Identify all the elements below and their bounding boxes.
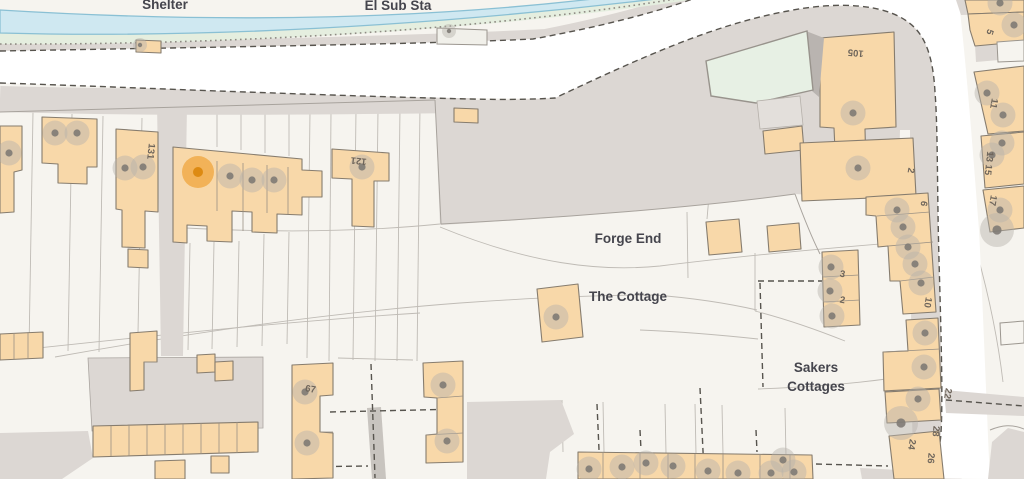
property-marker[interactable]	[913, 321, 938, 346]
house-number-label: 131	[144, 143, 157, 161]
label-shelter: Shelter	[142, 0, 189, 12]
property-marker[interactable]	[65, 121, 90, 146]
property-marker[interactable]	[634, 451, 659, 476]
house-number-label: 10	[921, 296, 934, 308]
property-marker[interactable]	[884, 406, 918, 440]
property-marker[interactable]	[818, 279, 843, 304]
property-marker[interactable]	[435, 429, 460, 454]
property-marker[interactable]	[841, 101, 866, 126]
house-number-label: 121	[350, 154, 368, 167]
label-the-cottage: The Cottage	[589, 289, 667, 304]
property-marker[interactable]	[912, 355, 937, 380]
map-canvas[interactable]: 1311211052610322228242651113 151767 Shel…	[0, 0, 1024, 479]
yard	[88, 357, 263, 431]
label-sakers-cottages-line2: Cottages	[787, 379, 845, 394]
house-number-label: 105	[847, 46, 864, 58]
property-marker[interactable]	[218, 164, 243, 189]
selected-marker-layer[interactable]	[182, 156, 214, 188]
house-number-label: 26	[925, 452, 937, 463]
property-marker[interactable]	[442, 24, 456, 38]
property-marker[interactable]	[431, 373, 456, 398]
house-number-label: 22	[941, 387, 954, 399]
house-number-label: 28	[930, 425, 942, 436]
garage-row	[93, 422, 258, 457]
property-marker[interactable]	[544, 305, 569, 330]
property-marker[interactable]	[846, 156, 871, 181]
label-sakers-cottages-line1: Sakers	[794, 360, 838, 375]
property-marker[interactable]	[909, 271, 934, 296]
property-marker[interactable]	[43, 121, 68, 146]
outlined-building	[997, 40, 1024, 62]
property-marker[interactable]	[240, 168, 265, 193]
property-marker[interactable]	[262, 168, 287, 193]
label-forge-end: Forge End	[595, 231, 662, 246]
property-marker[interactable]	[295, 431, 320, 456]
property-marker[interactable]	[980, 213, 1014, 247]
outlined-building	[1000, 321, 1024, 345]
property-marker[interactable]	[610, 455, 635, 479]
label-el-sub-sta: El Sub Sta	[365, 0, 432, 13]
map-viewport[interactable]: 1311211052610322228242651113 151767 Shel…	[0, 0, 1024, 479]
property-marker[interactable]	[906, 387, 931, 412]
house-number-label: 67	[304, 383, 316, 396]
house-number-label: 17	[986, 194, 999, 206]
property-marker-selected[interactable]	[182, 156, 214, 188]
property-marker[interactable]	[661, 454, 686, 479]
property-marker[interactable]	[820, 304, 845, 329]
property-marker[interactable]	[133, 38, 147, 52]
